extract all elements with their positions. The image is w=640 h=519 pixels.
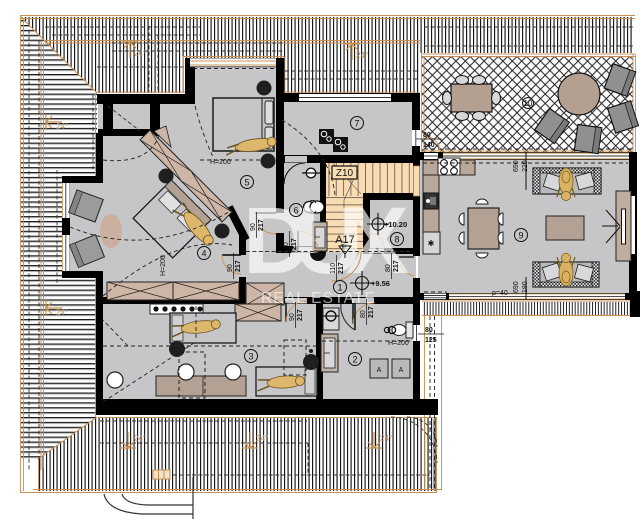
svg-text:24°: 24° bbox=[134, 434, 146, 443]
svg-text:24°: 24° bbox=[134, 49, 146, 58]
svg-text:217: 217 bbox=[291, 238, 298, 250]
svg-text:H=200: H=200 bbox=[388, 340, 409, 347]
svg-text:90: 90 bbox=[227, 264, 234, 272]
svg-text:A: A bbox=[377, 367, 382, 374]
svg-text:H=200: H=200 bbox=[210, 159, 231, 166]
svg-text:9: 9 bbox=[518, 231, 523, 241]
svg-text:80: 80 bbox=[360, 310, 367, 318]
svg-text:217: 217 bbox=[258, 219, 265, 231]
svg-text:690: 690 bbox=[513, 160, 520, 172]
svg-text:217: 217 bbox=[393, 260, 400, 272]
svg-text:217: 217 bbox=[297, 309, 304, 321]
svg-text:80: 80 bbox=[385, 264, 392, 272]
svg-text:+9.56: +9.56 bbox=[371, 279, 390, 288]
svg-text:REAL ESTATE: REAL ESTATE bbox=[261, 290, 379, 307]
svg-text:5: 5 bbox=[244, 178, 249, 188]
svg-text:3: 3 bbox=[248, 352, 253, 362]
svg-text:6: 6 bbox=[293, 206, 298, 216]
svg-text:p=40: p=40 bbox=[492, 290, 508, 297]
svg-text:24°: 24° bbox=[56, 122, 68, 131]
svg-text:90: 90 bbox=[289, 313, 296, 321]
svg-text:80: 80 bbox=[425, 327, 433, 334]
svg-text:80: 80 bbox=[283, 242, 290, 250]
svg-text:217: 217 bbox=[368, 306, 375, 318]
svg-text:✱: ✱ bbox=[428, 239, 435, 248]
svg-text:24°: 24° bbox=[356, 51, 368, 60]
svg-text:7: 7 bbox=[354, 119, 359, 129]
svg-text:125: 125 bbox=[425, 337, 437, 344]
svg-text:690: 690 bbox=[513, 281, 520, 293]
svg-text:24°: 24° bbox=[380, 434, 392, 443]
svg-text:90: 90 bbox=[250, 223, 257, 231]
svg-text:2: 2 bbox=[352, 355, 357, 365]
svg-text:A17: A17 bbox=[335, 234, 355, 246]
svg-text:A: A bbox=[399, 367, 404, 374]
svg-text:24°: 24° bbox=[256, 434, 268, 443]
svg-text:10: 10 bbox=[524, 99, 533, 108]
svg-text:140: 140 bbox=[423, 142, 435, 149]
svg-text:80: 80 bbox=[423, 132, 431, 139]
svg-text:24°: 24° bbox=[56, 308, 68, 317]
svg-text:110: 110 bbox=[330, 263, 337, 274]
svg-text:217: 217 bbox=[338, 262, 345, 274]
svg-text:Z10: Z10 bbox=[336, 168, 354, 179]
svg-text:1: 1 bbox=[337, 283, 342, 293]
svg-text:8: 8 bbox=[394, 235, 399, 245]
svg-text:+10.20: +10.20 bbox=[384, 220, 407, 229]
svg-text:217: 217 bbox=[235, 260, 242, 272]
svg-text:4: 4 bbox=[201, 249, 206, 259]
svg-text:H=200: H=200 bbox=[160, 255, 167, 276]
